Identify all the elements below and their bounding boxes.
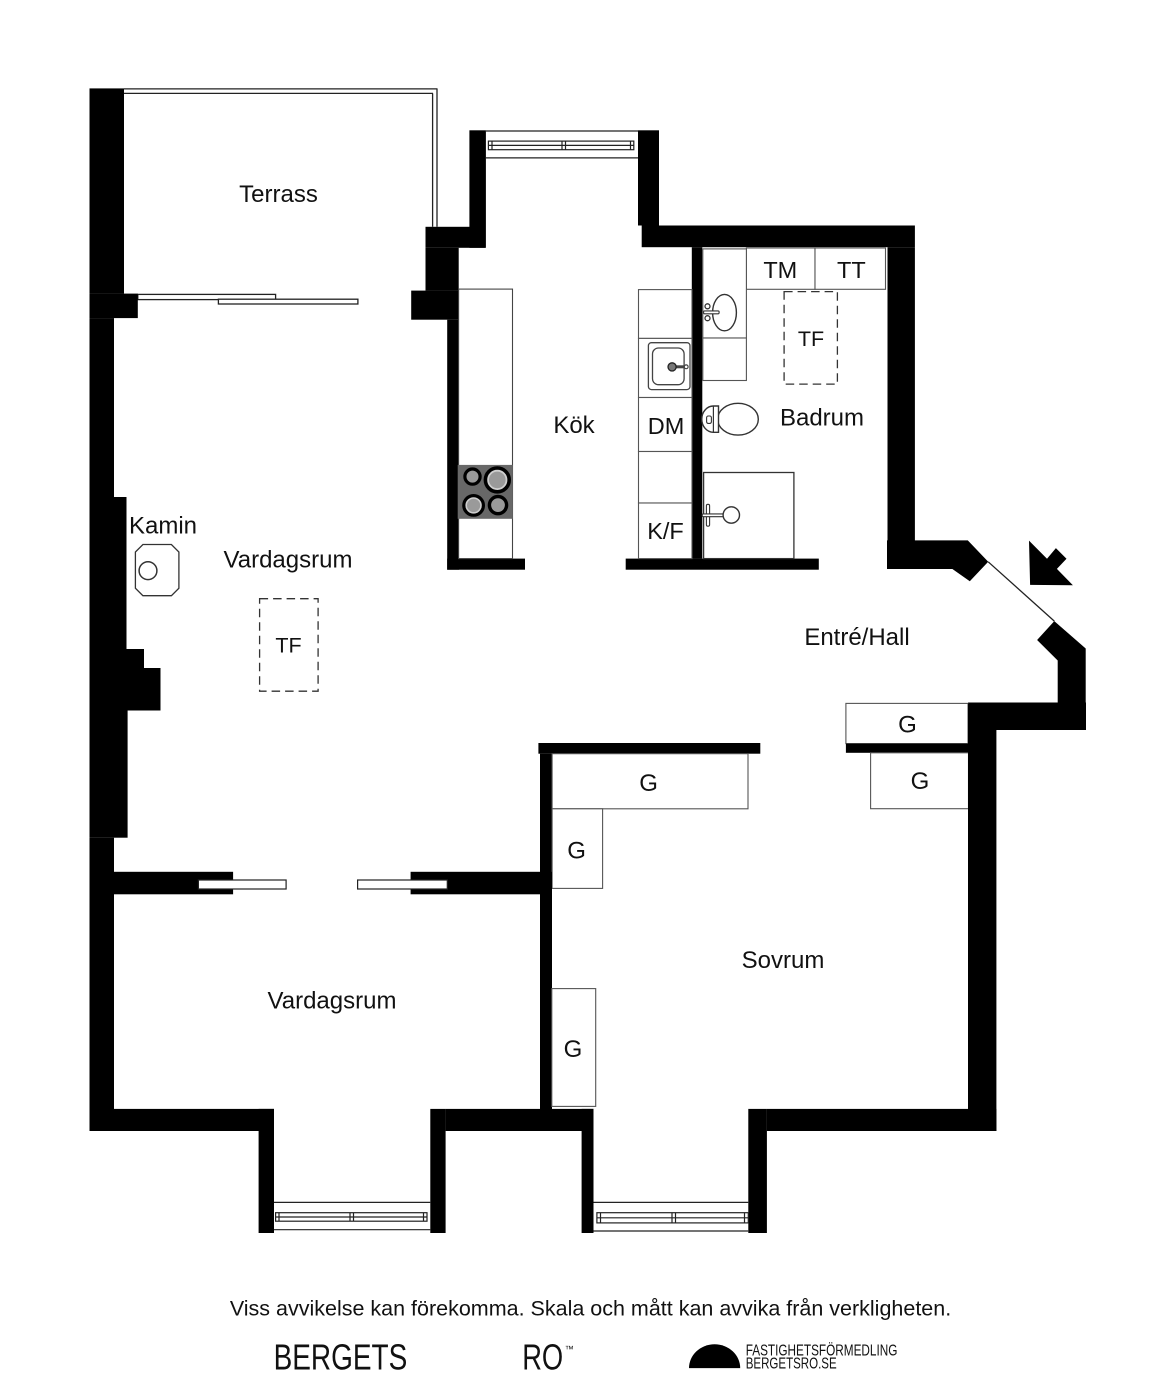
svg-text:TT: TT bbox=[837, 257, 866, 283]
svg-text:™: ™ bbox=[565, 1344, 574, 1354]
svg-text:G: G bbox=[567, 837, 586, 864]
svg-text:G: G bbox=[564, 1036, 583, 1063]
svg-text:DM: DM bbox=[648, 413, 685, 439]
svg-text:BERGETS: BERGETS bbox=[274, 1337, 408, 1378]
svg-text:G: G bbox=[639, 770, 658, 797]
svg-text:Entré/Hall: Entré/Hall bbox=[804, 624, 909, 651]
svg-text:TM: TM bbox=[763, 257, 797, 283]
svg-text:Vardagsrum: Vardagsrum bbox=[268, 987, 397, 1014]
svg-text:RO: RO bbox=[522, 1337, 563, 1378]
svg-text:Sovrum: Sovrum bbox=[742, 947, 825, 974]
svg-text:TF: TF bbox=[275, 633, 301, 657]
svg-text:Kamin: Kamin bbox=[129, 512, 197, 539]
svg-text:TF: TF bbox=[798, 327, 824, 351]
svg-text:G: G bbox=[911, 768, 930, 795]
svg-text:Terrass: Terrass bbox=[239, 181, 318, 208]
svg-text:K/F: K/F bbox=[647, 518, 684, 544]
svg-text:Viss avvikelse kan förekomma.: Viss avvikelse kan förekomma. Skala och … bbox=[230, 1297, 951, 1321]
svg-text:G: G bbox=[898, 711, 917, 738]
svg-text:Vardagsrum: Vardagsrum bbox=[224, 546, 353, 573]
svg-text:Badrum: Badrum bbox=[780, 404, 864, 431]
svg-text:BERGETSRO.SE: BERGETSRO.SE bbox=[746, 1356, 837, 1373]
svg-text:Kök: Kök bbox=[553, 412, 595, 439]
